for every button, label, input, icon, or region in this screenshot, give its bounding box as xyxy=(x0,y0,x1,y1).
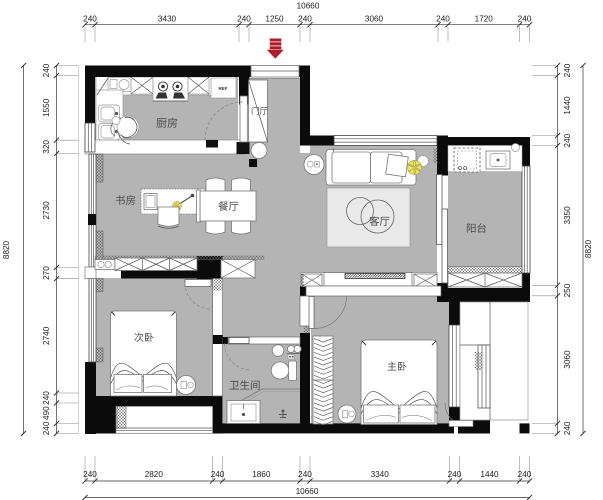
svg-text:240: 240 xyxy=(563,63,572,77)
svg-text:8820: 8820 xyxy=(2,240,11,259)
svg-text:490: 490 xyxy=(42,406,51,420)
svg-text:2740: 2740 xyxy=(42,326,51,345)
svg-text:240: 240 xyxy=(42,63,51,77)
svg-text:2820: 2820 xyxy=(145,470,164,479)
svg-text:240: 240 xyxy=(563,421,572,435)
svg-text:10660: 10660 xyxy=(296,487,319,496)
svg-text:3060: 3060 xyxy=(563,350,572,369)
svg-text:1250: 1250 xyxy=(265,15,284,24)
svg-text:240: 240 xyxy=(518,15,532,24)
svg-text:240: 240 xyxy=(237,15,251,24)
svg-text:240: 240 xyxy=(563,133,572,147)
svg-text:320: 320 xyxy=(42,140,51,154)
svg-text:240: 240 xyxy=(83,15,97,24)
svg-text:240: 240 xyxy=(518,470,532,479)
svg-text:3350: 3350 xyxy=(563,206,572,225)
svg-text:1440: 1440 xyxy=(480,470,499,479)
svg-text:240: 240 xyxy=(448,470,462,479)
svg-text:REF: REF xyxy=(219,86,228,91)
svg-text:3430: 3430 xyxy=(158,15,177,24)
svg-text:240: 240 xyxy=(298,15,312,24)
svg-text:240: 240 xyxy=(211,470,225,479)
svg-text:1440: 1440 xyxy=(563,96,572,115)
svg-text:270: 270 xyxy=(42,266,51,280)
svg-text:240: 240 xyxy=(436,15,450,24)
svg-text:240: 240 xyxy=(42,421,51,435)
svg-text:1720: 1720 xyxy=(475,15,494,24)
svg-text:10660: 10660 xyxy=(297,2,320,11)
svg-text:8820: 8820 xyxy=(584,239,593,258)
svg-text:1860: 1860 xyxy=(252,470,271,479)
svg-text:240: 240 xyxy=(42,391,51,405)
svg-text:240: 240 xyxy=(83,470,97,479)
svg-text:240: 240 xyxy=(298,470,312,479)
svg-text:2730: 2730 xyxy=(42,201,51,220)
svg-text:1550: 1550 xyxy=(42,98,51,117)
svg-text:250: 250 xyxy=(563,283,572,297)
svg-text:3060: 3060 xyxy=(365,15,384,24)
svg-text:3340: 3340 xyxy=(371,470,390,479)
